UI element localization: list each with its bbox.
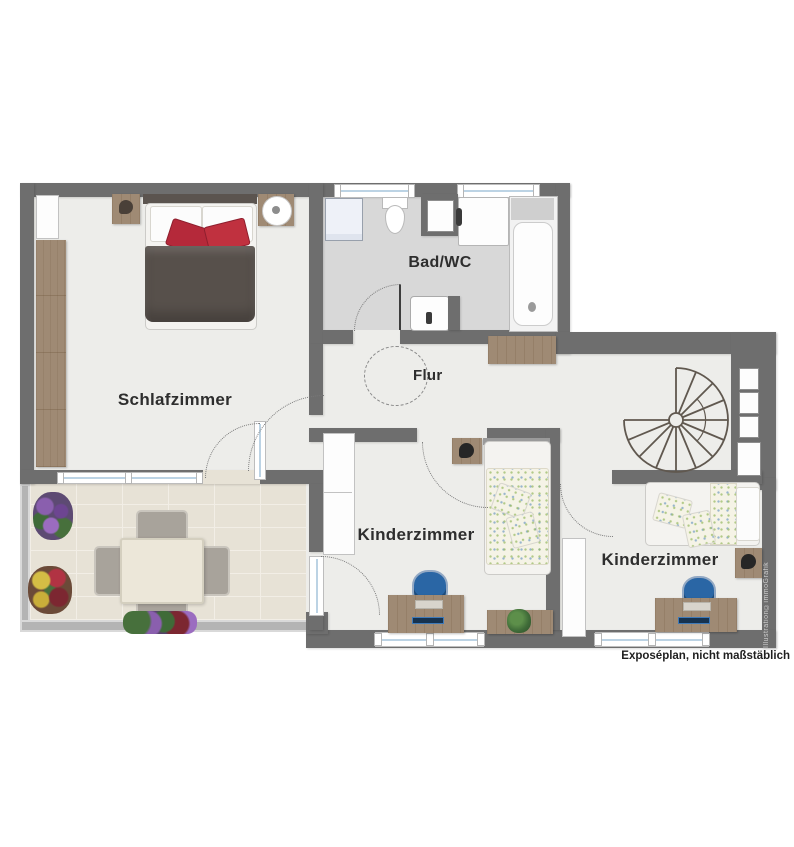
vanity-faucet <box>426 312 432 324</box>
window-mullion <box>408 184 415 198</box>
watermark-credit: Illustration©immoGrafik <box>763 538 775 648</box>
window-mullion <box>477 633 485 646</box>
window-mullion <box>457 184 464 198</box>
room-label-kinderzimmer-2: Kinderzimmer <box>590 550 730 570</box>
window-schlafzimmer-terrace <box>58 472 202 484</box>
vanity-wall-stub <box>448 296 460 330</box>
bathtub-deck <box>511 198 554 220</box>
potted-plant-k1 <box>507 609 531 633</box>
window-kinderzimmer-2 <box>595 632 709 647</box>
window-mullion <box>648 633 656 646</box>
floorplan-canvas: Schlafzimmer Bad/WC Flur Kinderzimmer Ki… <box>0 0 794 847</box>
flower-pot-purple <box>33 492 73 540</box>
terrace-table <box>120 538 204 604</box>
room-label-flur: Flur <box>413 367 473 384</box>
wall-k1-left-b <box>309 614 323 630</box>
window-mullion <box>125 472 132 484</box>
wall-bad-left <box>309 183 323 344</box>
shower-fixture <box>456 208 462 226</box>
window-mullion <box>334 184 341 198</box>
window-kinderzimmer-1 <box>375 632 484 647</box>
schlafzimmer-wall-niche <box>36 195 59 239</box>
monitor-kinderzimmer-2 <box>678 617 710 624</box>
wall-k1-left-a <box>309 484 323 552</box>
flower-box-railing <box>123 611 197 634</box>
nightstand-left-decor <box>119 200 133 214</box>
window-bad-1 <box>335 184 414 198</box>
room-label-bad-wc: Bad/WC <box>390 254 490 272</box>
room-label-schlafzimmer: Schlafzimmer <box>105 390 245 410</box>
bed-duvet <box>145 246 255 322</box>
k1-keyboard <box>415 600 443 609</box>
wardrobe-schlafzimmer <box>36 240 66 467</box>
disclaimer-note: Exposéplan, nicht maßstäblich <box>540 650 790 662</box>
window-mullion <box>594 633 602 646</box>
bedside-lamp-center <box>272 206 280 214</box>
terrace-railing-left <box>20 484 30 632</box>
room-label-kinderzimmer-1: Kinderzimmer <box>346 525 486 545</box>
lamp-kinderzimmer-2 <box>741 554 756 569</box>
wall-bad-right <box>556 183 570 354</box>
k2-keyboard <box>683 602 711 611</box>
wardrobe-k1-divider <box>324 492 352 493</box>
exterior-mask-bottomleft <box>20 632 306 648</box>
wall-bad-bottom-a <box>323 330 353 344</box>
wardrobe-kinderzimmer-2 <box>562 538 586 637</box>
k2-head-pillow <box>736 487 760 541</box>
bathroom-duct-inset <box>427 200 454 232</box>
flower-pot-red-yellow <box>28 566 72 614</box>
wall-left <box>20 183 34 484</box>
washing-machine <box>325 198 363 241</box>
flur-sideboard <box>488 336 556 364</box>
window-mullion <box>426 633 434 646</box>
window-mullion <box>57 472 64 484</box>
spiral-staircase <box>614 358 744 483</box>
bathtub-faucet <box>528 302 536 312</box>
window-mullion <box>702 633 710 646</box>
shower-tray <box>458 197 509 246</box>
window-mullion <box>196 472 203 484</box>
exterior-mask-topright <box>570 170 794 332</box>
window-mullion <box>374 633 382 646</box>
monitor-kinderzimmer-1 <box>412 617 444 624</box>
